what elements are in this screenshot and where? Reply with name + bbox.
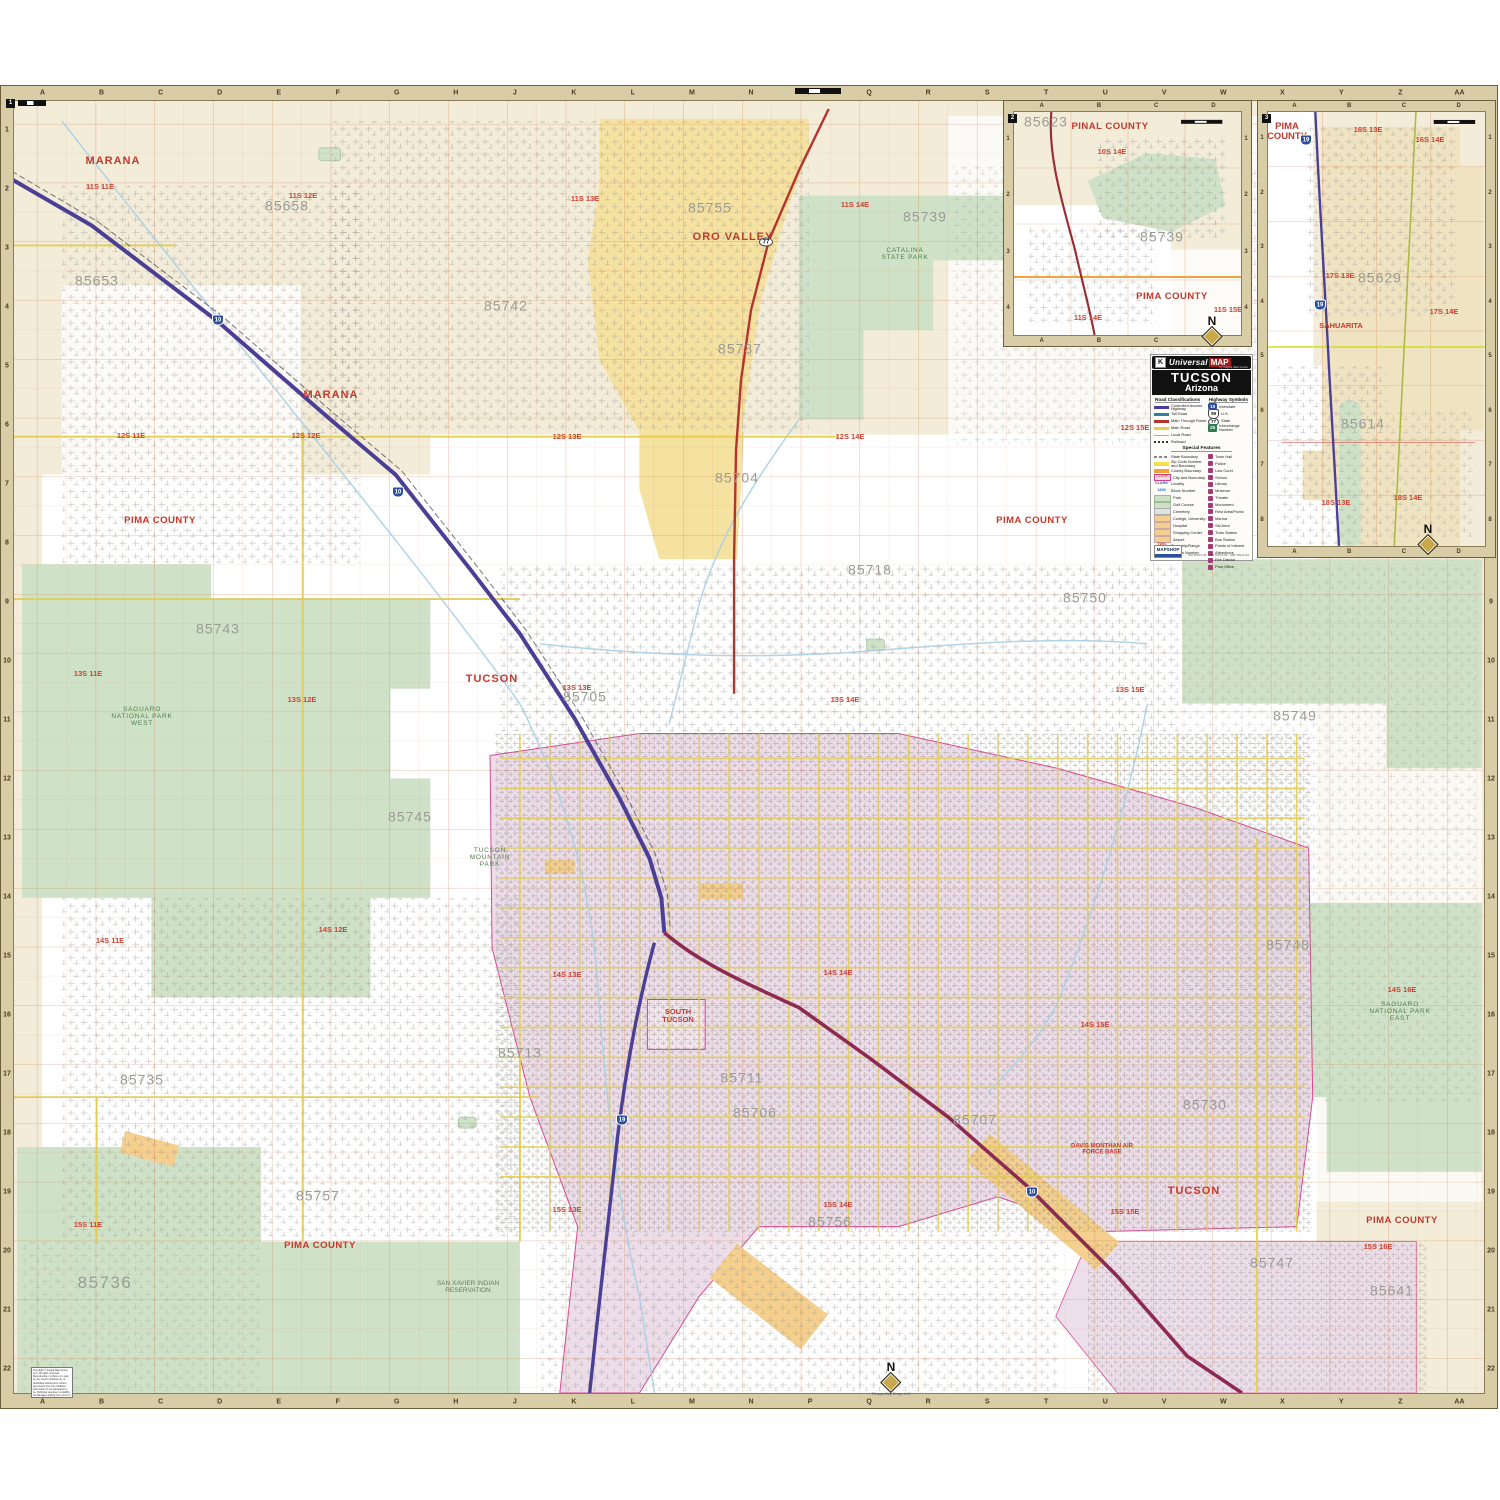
copyright-text: Copyright © Kappa Map Group, LLC. All ri… bbox=[33, 1369, 71, 1398]
grid-row-number: 4 bbox=[5, 304, 9, 311]
grid-column-letter: L bbox=[631, 1399, 635, 1406]
grid-column-letter: H bbox=[453, 90, 458, 97]
grid-column-letter: W bbox=[1220, 90, 1227, 97]
feature-point-symbol-icon bbox=[1208, 482, 1213, 487]
feature-point-symbol-icon bbox=[1208, 489, 1213, 494]
grid-column-letter: D bbox=[217, 90, 222, 97]
feature-swatch-cityb: CLARK bbox=[1154, 474, 1171, 481]
inset-map-catalina[interactable]: ABCD ABCD 1234 1234 bbox=[1003, 100, 1252, 347]
legend-road-class-row: Controlled Access Highway bbox=[1154, 404, 1208, 411]
grid-row-number: 20 bbox=[3, 1247, 11, 1254]
grid-row-number: 11 bbox=[3, 717, 10, 724]
inset-row-number: 2 bbox=[1260, 190, 1263, 196]
inset-column-letter: D bbox=[1456, 103, 1460, 109]
grid-row-number: 10 bbox=[3, 658, 11, 665]
road-class-swatch-mainrd bbox=[1154, 427, 1169, 430]
grid-column-letter: P bbox=[808, 90, 813, 97]
legend-item-label: Town Hall bbox=[1215, 455, 1232, 459]
inset-column-letter: D bbox=[1211, 103, 1215, 109]
grid-column-letter: M bbox=[689, 1399, 695, 1406]
legend-feature-row: 1200Block Number bbox=[1154, 488, 1208, 495]
feature-point-symbol-icon bbox=[1208, 461, 1213, 466]
grid-row-number: 21 bbox=[3, 1306, 11, 1313]
inset-column-letter: A bbox=[1292, 549, 1296, 555]
grid-column-letter: E bbox=[276, 90, 281, 97]
inset-row-number: 2 bbox=[1488, 190, 1491, 196]
legend-item-label: School bbox=[1215, 476, 1227, 480]
inset-row-number: 2 bbox=[1244, 192, 1247, 198]
grid-column-letter: Z bbox=[1398, 90, 1402, 97]
grid-column-letter: U bbox=[1103, 90, 1108, 97]
inset-row-number: 1 bbox=[1244, 136, 1247, 142]
grid-row-number: 15 bbox=[3, 952, 11, 959]
legend-feature-row: College, University bbox=[1154, 515, 1208, 522]
feature-sample-text: CLARK bbox=[1154, 482, 1169, 486]
legend-feature-row: Zip Code Number and Boundary bbox=[1154, 460, 1208, 467]
legend-road-class-row: Local Road bbox=[1154, 432, 1208, 439]
grid-column-letter: AA bbox=[1454, 90, 1464, 97]
grid-column-letter: M bbox=[689, 90, 695, 97]
legend-feature-row: County Boundary bbox=[1154, 467, 1208, 474]
grid-column-letter: X bbox=[1280, 1399, 1285, 1406]
inset-column-letter: C bbox=[1154, 103, 1158, 109]
legend-highway-symbol-row: 89U.S. bbox=[1208, 411, 1249, 418]
inset-row-number: 1 bbox=[1488, 135, 1491, 141]
grid-column-letter: C bbox=[158, 90, 163, 97]
inset-column-letter: B bbox=[1097, 338, 1101, 344]
feature-point-symbol-icon bbox=[1208, 503, 1213, 508]
feature-point-symbol-icon bbox=[1208, 565, 1213, 570]
legend-feature-row: Marina bbox=[1208, 515, 1249, 522]
inset-row-number: 6 bbox=[1260, 408, 1263, 414]
grid-row-number: 9 bbox=[1489, 599, 1493, 606]
legend-item-label: County Boundary bbox=[1171, 469, 1201, 473]
inset-column-letter: D bbox=[1456, 549, 1460, 555]
grid-column-letter: R bbox=[926, 90, 931, 97]
inset-row-number: 4 bbox=[1006, 305, 1009, 311]
inset-row-number: 6 bbox=[1488, 408, 1491, 414]
legend-item-label: Locality bbox=[1171, 482, 1184, 486]
legend-item-label: City and Boundary bbox=[1173, 476, 1205, 480]
inset-row-number: 5 bbox=[1488, 353, 1491, 359]
map-title-block: TUCSON Arizona bbox=[1152, 370, 1251, 395]
legend-item-label: Marina bbox=[1215, 517, 1227, 521]
legend-feature-row: Cemetery bbox=[1154, 508, 1208, 515]
tucson-wall-map-page: ABCDEFGHJKLMNPQRSTUVWXYZAA ABCDEFGHJKLMN… bbox=[0, 0, 1500, 1500]
legend-feature-row: Ski Area bbox=[1208, 522, 1249, 529]
legend-feature-row: Town Hall bbox=[1208, 453, 1249, 460]
grid-row-number: 17 bbox=[3, 1070, 11, 1077]
grid-row-number: 16 bbox=[1487, 1011, 1495, 1018]
legend-feature-row: Monument bbox=[1208, 502, 1249, 509]
grid-row-number: 2 bbox=[5, 186, 9, 193]
grid-column-letter: A bbox=[40, 1399, 45, 1406]
legend-item-label: Rest Area/Picnic bbox=[1215, 510, 1244, 514]
grid-column-letter: F bbox=[336, 1399, 340, 1406]
grid-column-letter: S bbox=[985, 1399, 990, 1406]
grid-column-letter: AA bbox=[1454, 1399, 1464, 1406]
grid-column-letter: P bbox=[808, 1399, 813, 1406]
grid-column-letter: Y bbox=[1339, 1399, 1344, 1406]
legend-feature-row: Bus Station bbox=[1208, 536, 1249, 543]
grid-row-number: 14 bbox=[1487, 893, 1495, 900]
grid-column-letter: V bbox=[1162, 1399, 1167, 1406]
legend-item-label: Post Office bbox=[1215, 565, 1234, 569]
grid-column-letter: E bbox=[276, 1399, 281, 1406]
grid-row-number: 11 bbox=[1487, 717, 1494, 724]
legend-feature-row: School bbox=[1208, 474, 1249, 481]
grid-column-letter: Q bbox=[866, 1399, 871, 1406]
grid-row-number: 3 bbox=[5, 245, 9, 252]
grid-row-number: 12 bbox=[3, 775, 11, 782]
legend-highway-symbol-row: 25Interchange Number bbox=[1208, 425, 1249, 432]
inset-column-letter: A bbox=[1039, 338, 1043, 344]
legend-feature-row: Train Station bbox=[1208, 529, 1249, 536]
feature-point-symbol-icon bbox=[1208, 454, 1213, 459]
legend-item-label: Monument bbox=[1215, 503, 1233, 507]
legend-item-label: Railroad bbox=[1171, 440, 1186, 444]
legend-item-label: Law Court bbox=[1215, 469, 1233, 473]
legend-item-label: Museum bbox=[1215, 489, 1230, 493]
grid-column-letter: B bbox=[99, 90, 104, 97]
grid-row-number: 21 bbox=[1487, 1306, 1495, 1313]
grid-column-letter: Z bbox=[1398, 1399, 1402, 1406]
legend-item-label: Ski Area bbox=[1215, 524, 1230, 528]
inset-row-number: 1 bbox=[1006, 136, 1009, 142]
inset-row-number: 4 bbox=[1244, 305, 1247, 311]
section-highway-symbols: Highway Symbols bbox=[1209, 397, 1248, 403]
brand-bar: K Universal MAP by Kappa Map Group bbox=[1152, 356, 1251, 369]
legend-item-label: Library bbox=[1215, 482, 1227, 486]
grid-row-number: 19 bbox=[1487, 1188, 1495, 1195]
road-class-swatch-rail bbox=[1154, 441, 1169, 443]
inset-column-letter: B bbox=[1347, 549, 1351, 555]
legend-item-label: Shopping Center bbox=[1173, 531, 1202, 535]
inset-row-number: 8 bbox=[1488, 517, 1491, 523]
legend-panel: K Universal MAP by Kappa Map Group TUCSO… bbox=[1150, 354, 1253, 561]
legend-item-label: Airport bbox=[1173, 538, 1184, 542]
inset-row-number: 3 bbox=[1244, 249, 1247, 255]
legend-item-label: U.S. bbox=[1221, 412, 1229, 416]
copyright-box: Copyright © Kappa Map Group, LLC. All ri… bbox=[31, 1367, 73, 1398]
legend-product-codes: UM 10277-02 · MM 70272-02 · MW 78212-02 bbox=[1188, 553, 1249, 557]
grid-row-number: 19 bbox=[3, 1188, 11, 1195]
grid-column-letter: J bbox=[513, 90, 517, 97]
feature-point-symbol-icon bbox=[1208, 516, 1213, 521]
legend-feature-row: CLARKCity and Boundary bbox=[1154, 474, 1208, 481]
legend-feature-row: Hospital bbox=[1154, 522, 1208, 529]
legend-item-label: Controlled Access Highway bbox=[1171, 404, 1208, 412]
legend-road-class-row: Main Through Route bbox=[1154, 418, 1208, 425]
grid-column-letter: A bbox=[40, 90, 45, 97]
brand-tagline: by Kappa Map Group bbox=[1219, 365, 1248, 369]
legend-item-label: Main Road bbox=[1171, 426, 1190, 430]
grid-row-number: 13 bbox=[1487, 834, 1495, 841]
grid-row-number: 1 bbox=[5, 127, 9, 134]
inset-column-letter: D bbox=[1211, 338, 1215, 344]
legend-item-label: Interchange Number bbox=[1219, 424, 1249, 432]
inum-shield-icon: 25 bbox=[1208, 424, 1217, 432]
road-class-swatch-local bbox=[1154, 435, 1169, 436]
map-subtitle: Arizona bbox=[1152, 384, 1251, 393]
grid-row-number: 17 bbox=[1487, 1070, 1495, 1077]
grid-column-letter: J bbox=[513, 1399, 517, 1406]
legend-feature-row: Shopping Center bbox=[1154, 529, 1208, 536]
grid-row-number: 13 bbox=[3, 834, 11, 841]
road-classification-list: Controlled Access HighwayToll RoadMain T… bbox=[1154, 404, 1208, 445]
legend-road-class-row: Toll Road bbox=[1154, 411, 1208, 418]
legend-feature-row: Rest Area/Picnic bbox=[1208, 508, 1249, 515]
legend-feature-row: Police bbox=[1208, 460, 1249, 467]
grid-row-number: 18 bbox=[1487, 1129, 1495, 1136]
inset-row-number: 8 bbox=[1260, 517, 1263, 523]
inset-row-number: 4 bbox=[1488, 299, 1491, 305]
grid-column-letter: G bbox=[394, 1399, 399, 1406]
legend-feature-row: CLARKLocality bbox=[1154, 481, 1208, 488]
grid-column-letter: S bbox=[985, 90, 990, 97]
legend-item-label: Train Station bbox=[1215, 531, 1237, 535]
legend-feature-row: Golf Course bbox=[1154, 502, 1208, 509]
legend-feature-row: Library bbox=[1208, 481, 1249, 488]
grid-column-letter: R bbox=[926, 1399, 931, 1406]
grid-column-letter: D bbox=[217, 1399, 222, 1406]
grid-row-number: 16 bbox=[3, 1011, 11, 1018]
inset-row-number: 2 bbox=[1006, 192, 1009, 198]
grid-column-letter: B bbox=[99, 1399, 104, 1406]
inset-map-catalina-area bbox=[1013, 111, 1242, 336]
inset-map-sahuarita-area bbox=[1267, 111, 1486, 547]
inset-column-letter: C bbox=[1154, 338, 1158, 344]
grid-row-number: 18 bbox=[3, 1129, 11, 1136]
feature-swatch-blk: 1200 bbox=[1154, 489, 1169, 493]
legend-road-class-row: Main Road bbox=[1154, 425, 1208, 432]
inset-column-letter: C bbox=[1402, 549, 1406, 555]
road-class-swatch-toll bbox=[1154, 413, 1169, 416]
grid-row-number: 15 bbox=[1487, 952, 1495, 959]
grid-row-number: 6 bbox=[5, 422, 9, 429]
feature-swatch-countyb bbox=[1154, 469, 1169, 473]
grid-column-letter: T bbox=[1044, 90, 1048, 97]
mapshop-logo: MAPSHOP bbox=[1154, 545, 1182, 558]
feature-swatch-stateb bbox=[1154, 456, 1169, 458]
grid-column-letter: T bbox=[1044, 1399, 1048, 1406]
legend-item-label: Interstate bbox=[1219, 405, 1235, 409]
inset-map-sahuarita[interactable]: ABCD ABCD 12345678 12345678 bbox=[1257, 100, 1496, 558]
legend-feature-row: Museum bbox=[1208, 488, 1249, 495]
grid-row-number: 20 bbox=[1487, 1247, 1495, 1254]
grid-column-letter: G bbox=[394, 90, 399, 97]
legend-item-label: Toll Road bbox=[1171, 412, 1187, 416]
legend-road-class-row: Railroad bbox=[1154, 438, 1208, 445]
kappa-logo-icon: K bbox=[1155, 357, 1166, 368]
grid-column-letter: H bbox=[453, 1399, 458, 1406]
legend-feature-row: Law Court bbox=[1208, 467, 1249, 474]
grid-row-number: 5 bbox=[5, 363, 9, 370]
inset-column-letter: B bbox=[1097, 103, 1101, 109]
grid-row-number: 12 bbox=[1487, 775, 1495, 782]
grid-column-letter: N bbox=[748, 90, 753, 97]
grid-row-number: 7 bbox=[5, 481, 9, 488]
inset-row-number: 5 bbox=[1260, 353, 1263, 359]
inset-row-number: 3 bbox=[1006, 249, 1009, 255]
legend-item-label: Zip Code Number and Boundary bbox=[1171, 460, 1208, 468]
feature-point-symbol-icon bbox=[1208, 475, 1213, 480]
grid-row-number: 9 bbox=[5, 599, 9, 606]
grid-column-letter: U bbox=[1103, 1399, 1108, 1406]
legend-item-label: Bus Station bbox=[1215, 538, 1235, 542]
legend-item-label: Hospital bbox=[1173, 524, 1187, 528]
inset-column-letter: C bbox=[1402, 103, 1406, 109]
feature-point-symbol-icon bbox=[1208, 537, 1213, 542]
road-class-swatch-cah bbox=[1154, 406, 1169, 410]
brand-name-universal: Universal bbox=[1169, 358, 1208, 367]
grid-column-letter: Y bbox=[1339, 90, 1344, 97]
feature-point-symbol-icon bbox=[1208, 509, 1213, 514]
grid-row-number: 22 bbox=[3, 1365, 11, 1372]
grid-column-letter: L bbox=[631, 90, 635, 97]
legend-feature-row: Post Office bbox=[1208, 564, 1249, 571]
inset-row-number: 7 bbox=[1260, 462, 1263, 468]
grid-column-letter: C bbox=[158, 1399, 163, 1406]
legend-item-label: Block Number bbox=[1171, 489, 1195, 493]
grid-row-number: 22 bbox=[1487, 1365, 1495, 1372]
legend-item-label: Cemetery bbox=[1173, 510, 1190, 514]
inset-column-letter: A bbox=[1039, 103, 1043, 109]
grid-row-number: 8 bbox=[5, 540, 9, 547]
inset1-art bbox=[1014, 112, 1241, 335]
grid-column-letter: K bbox=[571, 90, 576, 97]
grid-column-letter: Q bbox=[866, 90, 871, 97]
feature-sample-text: CLARK bbox=[1155, 475, 1170, 479]
grid-column-letter: V bbox=[1162, 90, 1167, 97]
feature-point-symbol-icon bbox=[1208, 468, 1213, 473]
inset-row-number: 7 bbox=[1488, 462, 1491, 468]
highway-symbols-list: 10Interstate89U.S.77State25Interchange N… bbox=[1208, 404, 1249, 445]
feature-swatch-loc: CLARK bbox=[1154, 482, 1169, 486]
legend-item-label: Police bbox=[1215, 462, 1226, 466]
grid-column-letter: F bbox=[336, 90, 340, 97]
inset-row-number: 3 bbox=[1260, 244, 1263, 250]
feature-point-symbol-icon bbox=[1208, 496, 1213, 501]
feature-point-symbol-icon bbox=[1208, 530, 1213, 535]
legend-item-label: Local Road bbox=[1171, 433, 1191, 437]
grid-column-letter: K bbox=[571, 1399, 576, 1406]
legend-item-label: Main Through Route bbox=[1171, 419, 1206, 423]
grid-column-letter: N bbox=[748, 1399, 753, 1406]
feature-swatch-zipb bbox=[1154, 462, 1169, 466]
legend-item-label: College, University bbox=[1173, 517, 1205, 521]
inset-row-number: 3 bbox=[1488, 244, 1491, 250]
legend-item-label: Park bbox=[1173, 496, 1181, 500]
grid-row-number: 14 bbox=[3, 893, 11, 900]
legend-feature-row: Park bbox=[1154, 495, 1208, 502]
inset-row-number: 4 bbox=[1260, 299, 1263, 305]
inset-column-letter: B bbox=[1347, 103, 1351, 109]
feature-point-symbol-icon bbox=[1208, 523, 1213, 528]
legend-feature-row: Theater bbox=[1208, 495, 1249, 502]
inset-column-letter: A bbox=[1292, 103, 1296, 109]
road-class-swatch-mtr bbox=[1154, 420, 1169, 423]
grid-column-letter: W bbox=[1220, 1399, 1227, 1406]
legend-item-label: Theater bbox=[1215, 496, 1228, 500]
grid-row-number: 10 bbox=[1487, 658, 1495, 665]
legend-item-label: Golf Course bbox=[1173, 503, 1194, 507]
feature-sample-text: 1200 bbox=[1154, 489, 1169, 493]
inset-row-number: 1 bbox=[1260, 135, 1263, 141]
inset2-art bbox=[1268, 112, 1485, 546]
grid-column-letter: X bbox=[1280, 90, 1285, 97]
